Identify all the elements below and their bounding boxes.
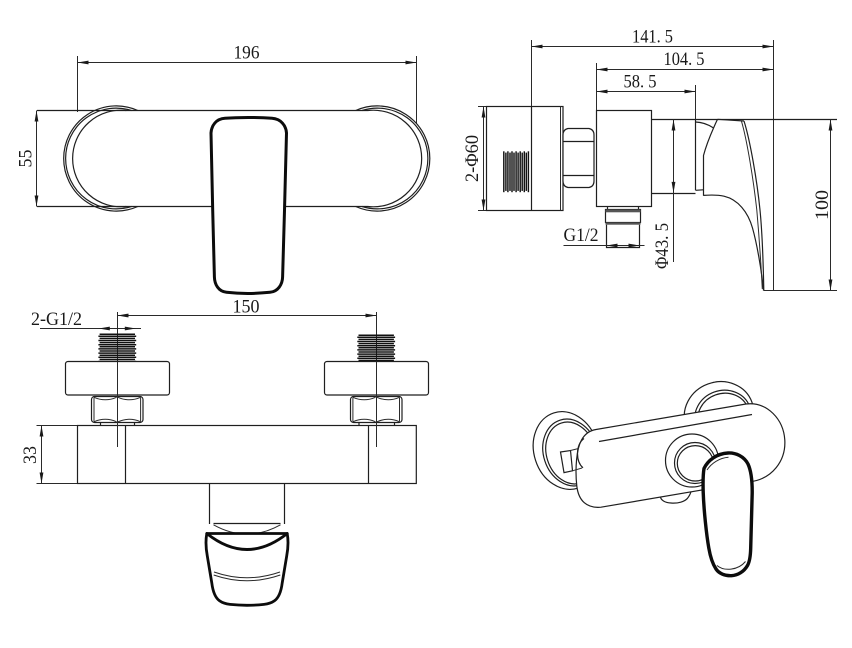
svg-text:G1/2: G1/2 xyxy=(564,225,599,246)
svg-text:141. 5: 141. 5 xyxy=(632,27,673,48)
svg-text:Φ43. 5: Φ43. 5 xyxy=(652,223,673,269)
svg-text:100: 100 xyxy=(812,190,833,220)
svg-text:150: 150 xyxy=(233,297,260,318)
svg-text:58. 5: 58. 5 xyxy=(624,72,657,93)
svg-text:196: 196 xyxy=(234,43,260,64)
svg-text:104. 5: 104. 5 xyxy=(664,49,705,70)
svg-text:33: 33 xyxy=(20,446,41,464)
svg-text:55: 55 xyxy=(16,150,37,168)
svg-text:2-Φ60: 2-Φ60 xyxy=(462,135,483,182)
svg-text:2-G1/2: 2-G1/2 xyxy=(31,309,82,330)
